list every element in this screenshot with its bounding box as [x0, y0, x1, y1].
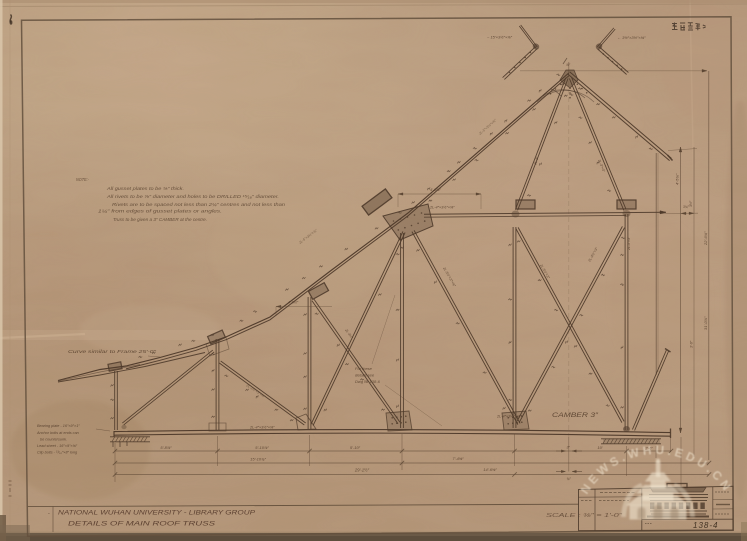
svg-text:Truss to be given a 3″ CAMBER: Truss to be given a 3″ CAMBER at the cen… — [113, 217, 207, 222]
svg-text:5′-10″: 5′-10″ — [350, 445, 361, 450]
svg-text:4′-5¾″: 4′-5¾″ — [675, 173, 680, 185]
svg-text:3¾″: 3¾″ — [683, 205, 690, 209]
svg-text:details see: details see — [355, 373, 375, 378]
svg-text:Clip bolts - ¹³⁄₁₆″×8″ long: Clip bolts - ¹³⁄₁₆″×8″ long — [37, 451, 78, 455]
svg-text:2L-4″×3½″×⅜″: 2L-4″×3½″×⅜″ — [496, 415, 522, 419]
svg-text:31′-0⅞″: 31′-0⅞″ — [703, 316, 708, 330]
svg-text:NATIONAL WUHAN UNIVERSITY -: NATIONAL WUHAN UNIVERSITY - LIBRARY GROU… — [58, 510, 256, 517]
svg-text:15′-10¾″: 15′-10¾″ — [250, 457, 266, 462]
svg-text:CAMBER 3″: CAMBER 3″ — [552, 412, 599, 419]
svg-text:7′-4⅝″: 7′-4⅝″ — [452, 456, 464, 461]
svg-text:All gusset plates to be ⅜″ thi: All gusset plates to be ⅜″ thick. — [106, 186, 184, 191]
svg-text:4′-0⅞″: 4′-0⅞″ — [430, 188, 441, 192]
svg-text:5′-8⅞″: 5′-8⅞″ — [160, 445, 172, 450]
svg-text:3½″: 3½″ — [689, 200, 693, 207]
svg-text:be countersunk.: be countersunk. — [40, 438, 67, 442]
svg-text:Lead sheet - 16″×9″×⅛″: Lead sheet - 16″×9″×⅛″ — [37, 444, 78, 448]
svg-text:4′-0½″: 4′-0½″ — [288, 301, 299, 305]
svg-text:¾″: ¾″ — [567, 477, 572, 481]
svg-text:Bearing plate - 16″×9″×1″: Bearing plate - 16″×9″×1″ — [37, 424, 80, 428]
svg-text:5′-10⅞″: 5′-10⅞″ — [255, 445, 269, 450]
svg-text:2L-4″×3½″×⅜″: 2L-4″×3½″×⅜″ — [429, 206, 455, 210]
svg-text:22′-6¾″: 22′-6¾″ — [703, 231, 708, 246]
svg-text:For these: For these — [355, 366, 373, 371]
svg-text:Anchor bolts at ends can: Anchor bolts at ends can — [36, 431, 79, 435]
svg-text:DETAILS OF MAIN ROOF TRUSS: DETAILS OF MAIN ROOF TRUSS — [68, 521, 215, 528]
svg-text:2L-3″×3″: 2L-3″×3″ — [627, 236, 631, 251]
svg-text:Dwg № 138-6: Dwg № 138-6 — [355, 379, 381, 384]
svg-text:1¼″ from edges of gusset plate: 1¼″ from edges of gusset plates or angle… — [98, 209, 222, 214]
svg-text:← 3½″×3½″×⅜″: ← 3½″×3½″×⅜″ — [617, 35, 646, 40]
svg-text:~ 15′×3½″×⅜″: ~ 15′×3½″×⅜″ — [487, 35, 513, 40]
svg-text:NOTE:-: NOTE:- — [76, 177, 90, 182]
svg-text:All rivets to be ⅞″ diameter a: All rivets to be ⅞″ diameter and holes t… — [106, 194, 279, 199]
svg-text:SCALE : ⅜″ = 1′-0″: SCALE : ⅜″ = 1′-0″ — [546, 513, 623, 519]
svg-text:2L-4″×3½″×⅜″: 2L-4″×3½″×⅜″ — [249, 426, 275, 430]
svg-text:14′-6⅝″: 14′-6⅝″ — [483, 467, 497, 472]
svg-text:Curve similar to Frame 25′-0″: Curve similar to Frame 25′-0″ — [68, 349, 157, 354]
svg-text:Rivets are to be spaced not le: Rivets are to be spaced not less than 2¼… — [112, 202, 286, 207]
svg-text:3′-6″: 3′-6″ — [690, 340, 694, 348]
svg-text:29′-1½″: 29′-1½″ — [354, 468, 370, 473]
svg-text:10′: 10′ — [597, 445, 602, 450]
svg-text:138-4: 138-4 — [693, 521, 718, 530]
